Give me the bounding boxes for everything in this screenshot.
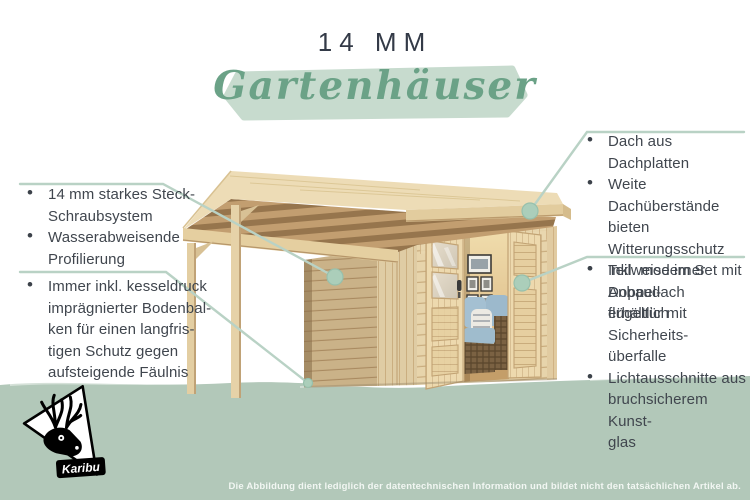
dot-wall [327,269,343,285]
feature-item: Lichtausschnitte aus bruchsicherem Kunst… [585,368,750,454]
left-door [426,229,464,389]
feature-item: Dach aus Dachplatten [585,131,750,174]
feature-list-right-bottom: Inkl. moderner Doppel- flügeltür mit Sic… [585,260,750,454]
right-door [508,231,541,378]
doorway-interior [464,232,509,382]
garden-house [183,171,571,398]
disclaimer-text: Die Abbildung dient lediglich der datent… [228,481,741,492]
door-handle [457,280,462,291]
dot-door [514,275,530,291]
page-title: 14 MM [0,27,750,58]
infographic-page: Karibu 14 MM Gartenhäuser 14 mm starkes … [0,0,750,500]
roof-right-cap [563,204,571,220]
feature-list-left-bottom: Immer inkl. kesseldruck imprägnierter Bo… [25,276,220,384]
sofa [464,295,509,374]
feature-item: Inkl. moderner Doppel- flügeltür mit Sic… [585,260,750,368]
feature-item: 14 mm starkes Steck- Schraubsystem [25,184,215,227]
page-subtitle: Gartenhäuser [0,62,750,110]
house-side-wall [304,249,377,387]
feature-item: Weite Dachüberstände bieten Witterungssc… [585,174,750,260]
dot-roof [522,203,538,219]
feature-item: Immer inkl. kesseldruck imprägnierter Bo… [25,276,220,384]
feature-item: Wasserabweisende Profilierung [25,227,215,270]
dot-foundation [304,379,313,388]
logo-wordmark: Karibu [61,460,101,477]
feature-list-left-top: 14 mm starkes Steck- Schraubsystem Wasse… [25,184,215,270]
